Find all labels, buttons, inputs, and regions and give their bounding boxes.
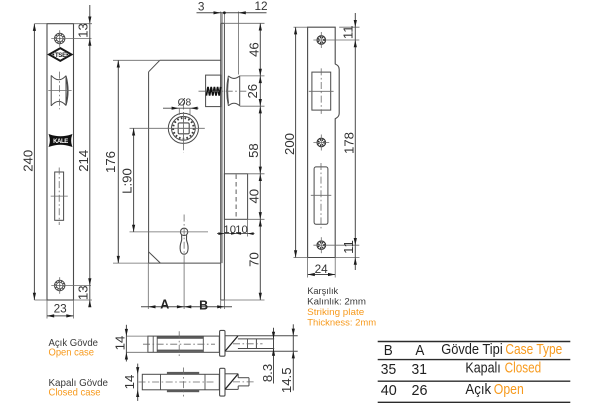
svg-text:10: 10 xyxy=(223,224,236,236)
svg-text:11: 11 xyxy=(341,25,356,39)
svg-text:14: 14 xyxy=(113,336,128,351)
svg-text:8.3: 8.3 xyxy=(260,364,275,382)
svg-text:70: 70 xyxy=(246,252,261,267)
svg-text:10: 10 xyxy=(235,224,248,236)
svg-text:35: 35 xyxy=(381,361,396,378)
svg-text:14.5: 14.5 xyxy=(279,367,294,393)
svg-text:240: 240 xyxy=(20,150,35,172)
svg-text:12: 12 xyxy=(254,0,267,13)
svg-text:13: 13 xyxy=(75,23,90,38)
svg-text:214: 214 xyxy=(76,150,91,172)
svg-text:Open case: Open case xyxy=(49,348,95,359)
svg-text:58: 58 xyxy=(246,143,261,158)
svg-text:Closed: Closed xyxy=(505,360,542,377)
svg-text:26: 26 xyxy=(245,84,260,99)
svg-text:Kalınlık: 2mm: Kalınlık: 2mm xyxy=(307,297,366,308)
svg-text:Closed case: Closed case xyxy=(49,388,101,399)
svg-text:A: A xyxy=(415,342,424,359)
svg-text:178: 178 xyxy=(342,132,357,154)
svg-text:24: 24 xyxy=(315,262,329,276)
svg-text:14: 14 xyxy=(122,375,137,390)
svg-text:46: 46 xyxy=(247,42,262,57)
svg-text:13: 13 xyxy=(75,285,90,300)
svg-text:176: 176 xyxy=(103,151,118,173)
svg-text:Open: Open xyxy=(494,381,524,398)
svg-text:Açık: Açık xyxy=(465,381,491,398)
svg-text:40: 40 xyxy=(381,382,397,399)
svg-text:Case Type: Case Type xyxy=(505,341,562,358)
svg-text:26: 26 xyxy=(412,382,428,399)
svg-text:40: 40 xyxy=(246,189,261,204)
svg-text:31: 31 xyxy=(412,361,427,378)
svg-text:200: 200 xyxy=(282,133,297,155)
svg-text:Gövde Tipi: Gövde Tipi xyxy=(441,341,503,358)
svg-text:KALE: KALE xyxy=(53,139,68,145)
svg-text:Thickness: 2mm: Thickness: 2mm xyxy=(307,318,376,329)
svg-text:L:90: L:90 xyxy=(119,168,134,194)
svg-text:A: A xyxy=(160,298,169,312)
svg-text:B: B xyxy=(199,298,208,312)
svg-text:TSE: TSE xyxy=(55,52,66,59)
svg-text:23: 23 xyxy=(54,302,68,316)
svg-text:Kapalı: Kapalı xyxy=(465,360,500,377)
svg-text:11: 11 xyxy=(341,240,356,254)
svg-text:B: B xyxy=(384,342,393,359)
svg-text:Striking plate: Striking plate xyxy=(307,307,364,318)
svg-text:3: 3 xyxy=(198,0,205,14)
svg-text:Ø8: Ø8 xyxy=(178,97,192,108)
